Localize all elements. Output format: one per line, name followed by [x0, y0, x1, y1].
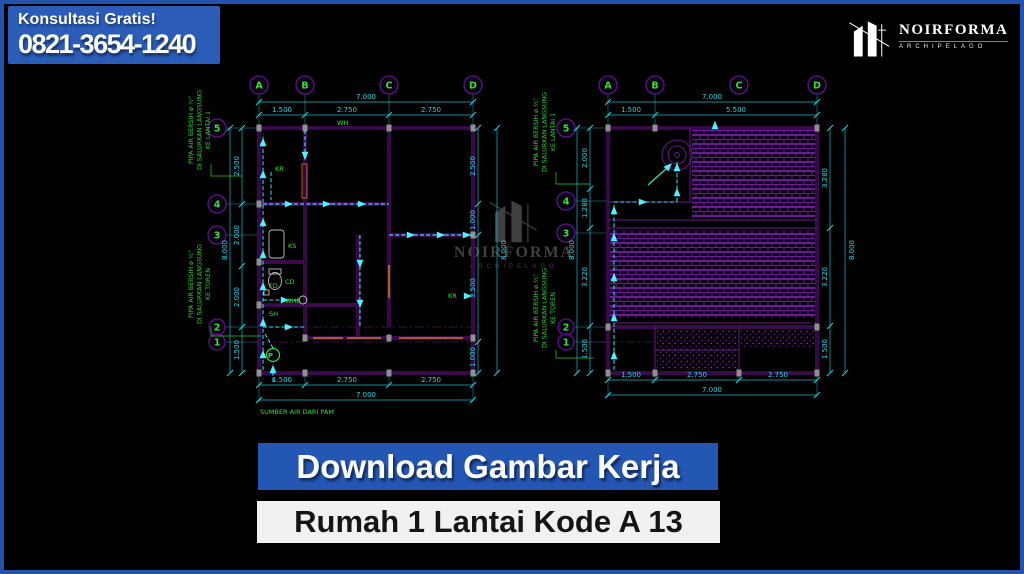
brand-logo: NOIRFORMA ARCHIPELAGO [848, 13, 1008, 59]
dim-overall-right: 8.000 [500, 240, 508, 260]
left-plan-note-bottom: PIPA AIR BERSIH ø ½" DI SALURKAN LANGSUN… [187, 244, 212, 324]
label-cd: CD [285, 278, 295, 286]
contact-badge-heading: Konsultasi Gratis! [18, 11, 210, 29]
dim-overall-left: 8.000 [568, 240, 576, 260]
svg-text:DI SALURKAN LANGSUNG: DI SALURKAN LANGSUNG [542, 92, 549, 172]
label-sh: SH [269, 310, 278, 318]
dim-right-3: 3.500 [469, 278, 477, 298]
cad-drawings-canvas: A B C D 5 4 3 2 1 [183, 70, 893, 425]
dim-overall-width: 7.000 [702, 93, 722, 101]
dim-left-4: 1.500 [581, 339, 589, 359]
left-plan-walls [259, 128, 473, 373]
dim-left-1: 2.000 [581, 148, 589, 168]
svg-text:DI SALURKAN LANGSUNG: DI SALURKAN LANGSUNG [542, 268, 549, 348]
svg-text:DI SALURKAN LANGSUNG: DI SALURKAN LANGSUNG [197, 244, 204, 324]
left-plan-centerlines [245, 327, 480, 342]
grid-row-3: 3 [214, 231, 221, 242]
dim-right-3: 1.500 [821, 339, 829, 359]
svg-text:PIPA AIR BERSIH ø ½": PIPA AIR BERSIH ø ½" [187, 96, 195, 164]
svg-text:PIPA AIR BERSIH ø ½": PIPA AIR BERSIH ø ½" [532, 274, 540, 342]
left-plan-grid-bubbles-rows: 5 4 3 2 1 [208, 119, 226, 350]
dim-overall-left: 8.000 [221, 240, 229, 260]
label-pump: P [268, 352, 273, 360]
dim-top-3: 2.750 [421, 106, 441, 114]
svg-text:KE LANTAI 1: KE LANTAI 1 [205, 111, 212, 149]
grid-row-5: 5 [563, 124, 570, 135]
label-ks: KS [288, 242, 296, 250]
grid-col-c: C [736, 81, 743, 92]
dim-bottom-2: 2.750 [687, 371, 707, 379]
grid-row-5: 5 [214, 124, 221, 135]
dim-right-2: 1.000 [469, 210, 477, 230]
dim-bottom-1: 1.500 [272, 376, 292, 384]
grid-row-2: 2 [214, 323, 221, 334]
note-leader [556, 172, 590, 184]
grid-col-d: D [469, 81, 477, 92]
dim-bottom-3: 2.750 [421, 376, 441, 384]
grid-col-a: A [604, 81, 612, 92]
dim-left-3: 2.000 [233, 287, 241, 307]
dim-top-1: 1.500 [621, 106, 641, 114]
grid-row-2: 2 [563, 323, 570, 334]
dim-right-1: 2.500 [469, 156, 477, 176]
dim-overall-bottom: 7.000 [702, 386, 722, 394]
dim-left-4: 1.500 [233, 340, 241, 360]
roof-tile-hatch [610, 130, 815, 370]
right-plan-roof: A B C D 5 4 3 2 1 [532, 76, 856, 398]
dim-right-2: 3.220 [821, 267, 829, 287]
grid-col-d: D [813, 81, 821, 92]
dim-bottom-2: 2.750 [337, 376, 357, 384]
floor-drain-symbol [264, 290, 269, 295]
grid-row-4: 4 [214, 200, 221, 211]
dim-top-1: 1.500 [272, 106, 292, 114]
grid-row-4: 4 [563, 197, 570, 208]
svg-text:KE TOREN: KE TOREN [205, 268, 212, 300]
dim-left-2: 1.280 [581, 198, 589, 218]
dim-right-1: 3.280 [821, 168, 829, 188]
label-whb: WHB [285, 297, 301, 305]
brand-name: NOIRFORMA [899, 22, 1008, 39]
promo-image: Konsultasi Gratis! 0821-3654-1240 NOIRFO… [0, 0, 1024, 574]
svg-text:PIPA AIR BERSIH ø ½": PIPA AIR BERSIH ø ½" [187, 250, 195, 318]
dim-left-2: 2.000 [233, 225, 241, 245]
svg-text:KE LANTAI 1: KE LANTAI 1 [550, 113, 557, 151]
dim-top-2: 5.500 [726, 106, 746, 114]
contact-badge: Konsultasi Gratis! 0821-3654-1240 [8, 6, 220, 64]
label-kr: KR [275, 165, 284, 173]
right-plan-note-top: PIPA AIR BERSIH ø ½" DI SALURKAN LANGSUN… [532, 92, 557, 172]
grid-col-c: C [386, 81, 393, 92]
building-logo-icon [848, 13, 892, 59]
grid-row-3: 3 [563, 229, 570, 240]
left-plan-note-top: PIPA AIR BERSIH ø ½" DI SALURKAN LANGSUN… [187, 90, 212, 170]
right-plan-grid-bubbles-rows: 5 4 3 2 1 [557, 119, 575, 350]
left-plan-plumbing: A B C D 5 4 3 2 1 [187, 76, 508, 416]
dim-right-4: 1.000 [469, 347, 477, 367]
svg-text:KE TOREN: KE TOREN [550, 292, 557, 324]
toilet-tank-symbol [269, 269, 281, 274]
grid-row-1: 1 [214, 338, 221, 349]
product-title-banner: Rumah 1 Lantai Kode A 13 [257, 501, 720, 543]
grid-row-1: 1 [563, 338, 570, 349]
dim-left-1: 2.500 [233, 156, 241, 176]
svg-text:DI SALURKAN LANGSUNG: DI SALURKAN LANGSUNG [197, 90, 204, 170]
download-banner[interactable]: Download Gambar Kerja [258, 443, 718, 490]
dim-bottom-3: 2.750 [768, 371, 788, 379]
dim-bottom-1: 1.500 [621, 371, 641, 379]
label-kr-2: KR [448, 292, 457, 300]
dim-top-2: 2.750 [337, 106, 357, 114]
grid-col-b: B [301, 81, 308, 92]
grid-col-b: B [651, 81, 658, 92]
left-plan-pipes [260, 130, 473, 382]
right-plan-grid-bubbles-top: A B C D [599, 76, 826, 94]
dim-overall-width: 7.000 [356, 93, 376, 101]
label-wh: WH [337, 119, 348, 127]
dim-left-3: 3.220 [581, 267, 589, 287]
brand-subtitle: ARCHIPELAGO [899, 41, 1008, 50]
label-fd: FD [269, 282, 278, 290]
kitchen-sink-symbol [269, 230, 284, 258]
svg-text:PIPA AIR BERSIH ø ½": PIPA AIR BERSIH ø ½" [532, 98, 540, 166]
dim-overall-right: 8.000 [848, 240, 856, 260]
left-plan-grid-bubbles-top: A B C D [250, 76, 482, 94]
label-water-source: SUMBER AIR DARI PAM [260, 408, 334, 416]
right-plan-note-bottom: PIPA AIR BERSIH ø ½" DI SALURKAN LANGSUN… [532, 268, 557, 348]
dim-overall-bottom: 7.000 [356, 391, 376, 399]
grid-col-a: A [255, 81, 263, 92]
contact-phone-number: 0821-3654-1240 [18, 29, 210, 59]
